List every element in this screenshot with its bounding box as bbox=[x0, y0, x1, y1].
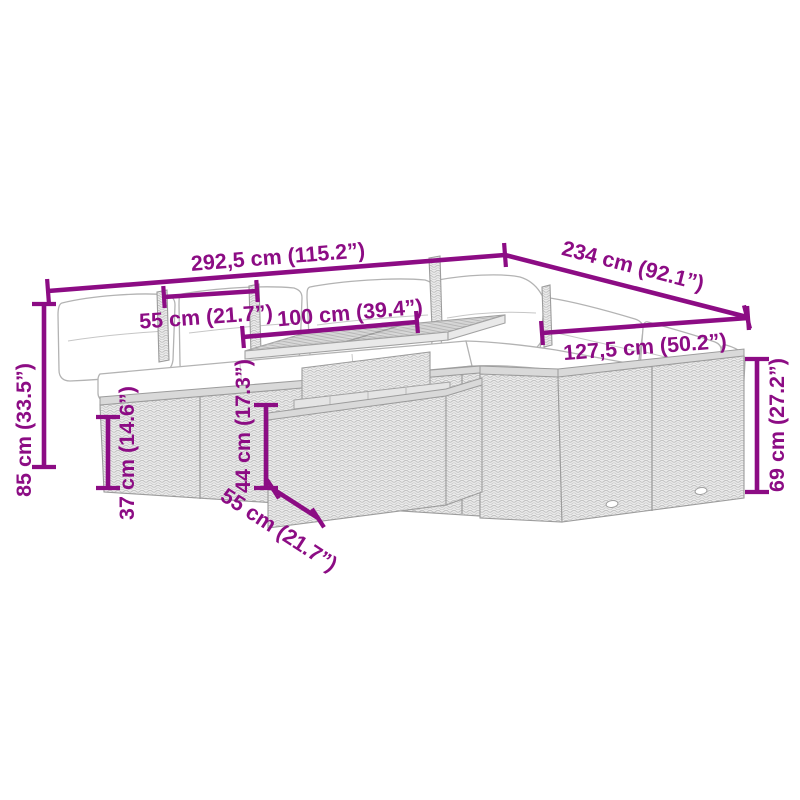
dimension-label: 69 cm (27.2”) bbox=[765, 358, 789, 492]
right-sofa-base bbox=[480, 349, 744, 522]
dimension-label: 37 cm (14.6”) bbox=[115, 386, 139, 520]
diagram-canvas: 292,5 cm (115.2”) 234 cm (92.1”) 55 cm (… bbox=[0, 0, 800, 800]
dimension-label: 44 cm (17.3”) bbox=[231, 359, 255, 493]
dimension-overall-height: 85 cm (33.5”) bbox=[12, 304, 56, 497]
corner-front-panel bbox=[480, 374, 562, 522]
box-side-panel bbox=[446, 385, 482, 505]
product-dimension-diagram: 292,5 cm (115.2”) 234 cm (92.1”) 55 cm (… bbox=[0, 0, 800, 800]
dimension-back-height: 69 cm (27.2”) bbox=[745, 358, 789, 492]
right-front-panel bbox=[558, 356, 744, 522]
dimension-label: 85 cm (33.5”) bbox=[12, 363, 36, 497]
